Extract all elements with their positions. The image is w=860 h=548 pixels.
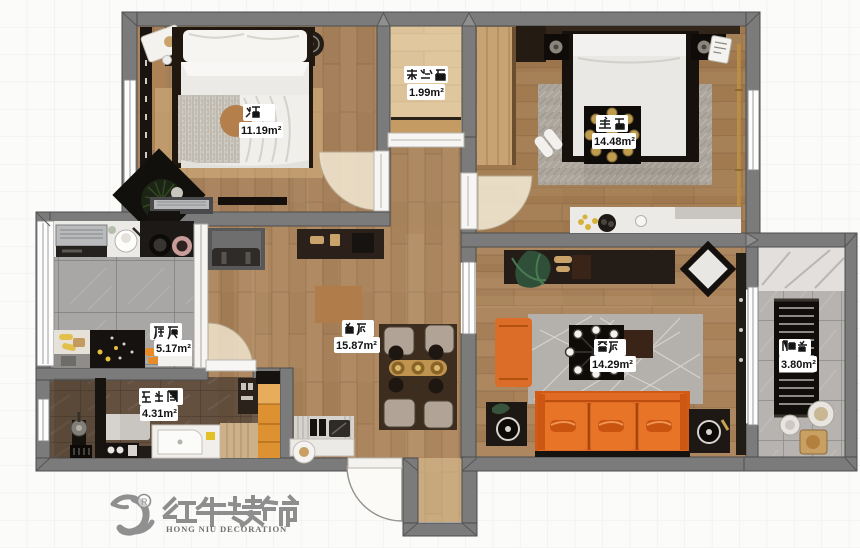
- svg-text:15.87m²: 15.87m²: [336, 340, 377, 352]
- svg-text:11.19m²: 11.19m²: [241, 125, 282, 137]
- svg-text:1.99m²: 1.99m²: [409, 87, 444, 99]
- svg-text:3.80m²: 3.80m²: [781, 359, 816, 371]
- svg-text:HONG NIU DECORATION: HONG NIU DECORATION: [166, 524, 287, 534]
- svg-text:R: R: [141, 497, 148, 507]
- svg-text:5.17m²: 5.17m²: [156, 343, 191, 355]
- svg-text:14.29m²: 14.29m²: [592, 359, 633, 371]
- svg-text:4.31m²: 4.31m²: [142, 408, 177, 420]
- svg-text:14.48m²: 14.48m²: [594, 136, 635, 148]
